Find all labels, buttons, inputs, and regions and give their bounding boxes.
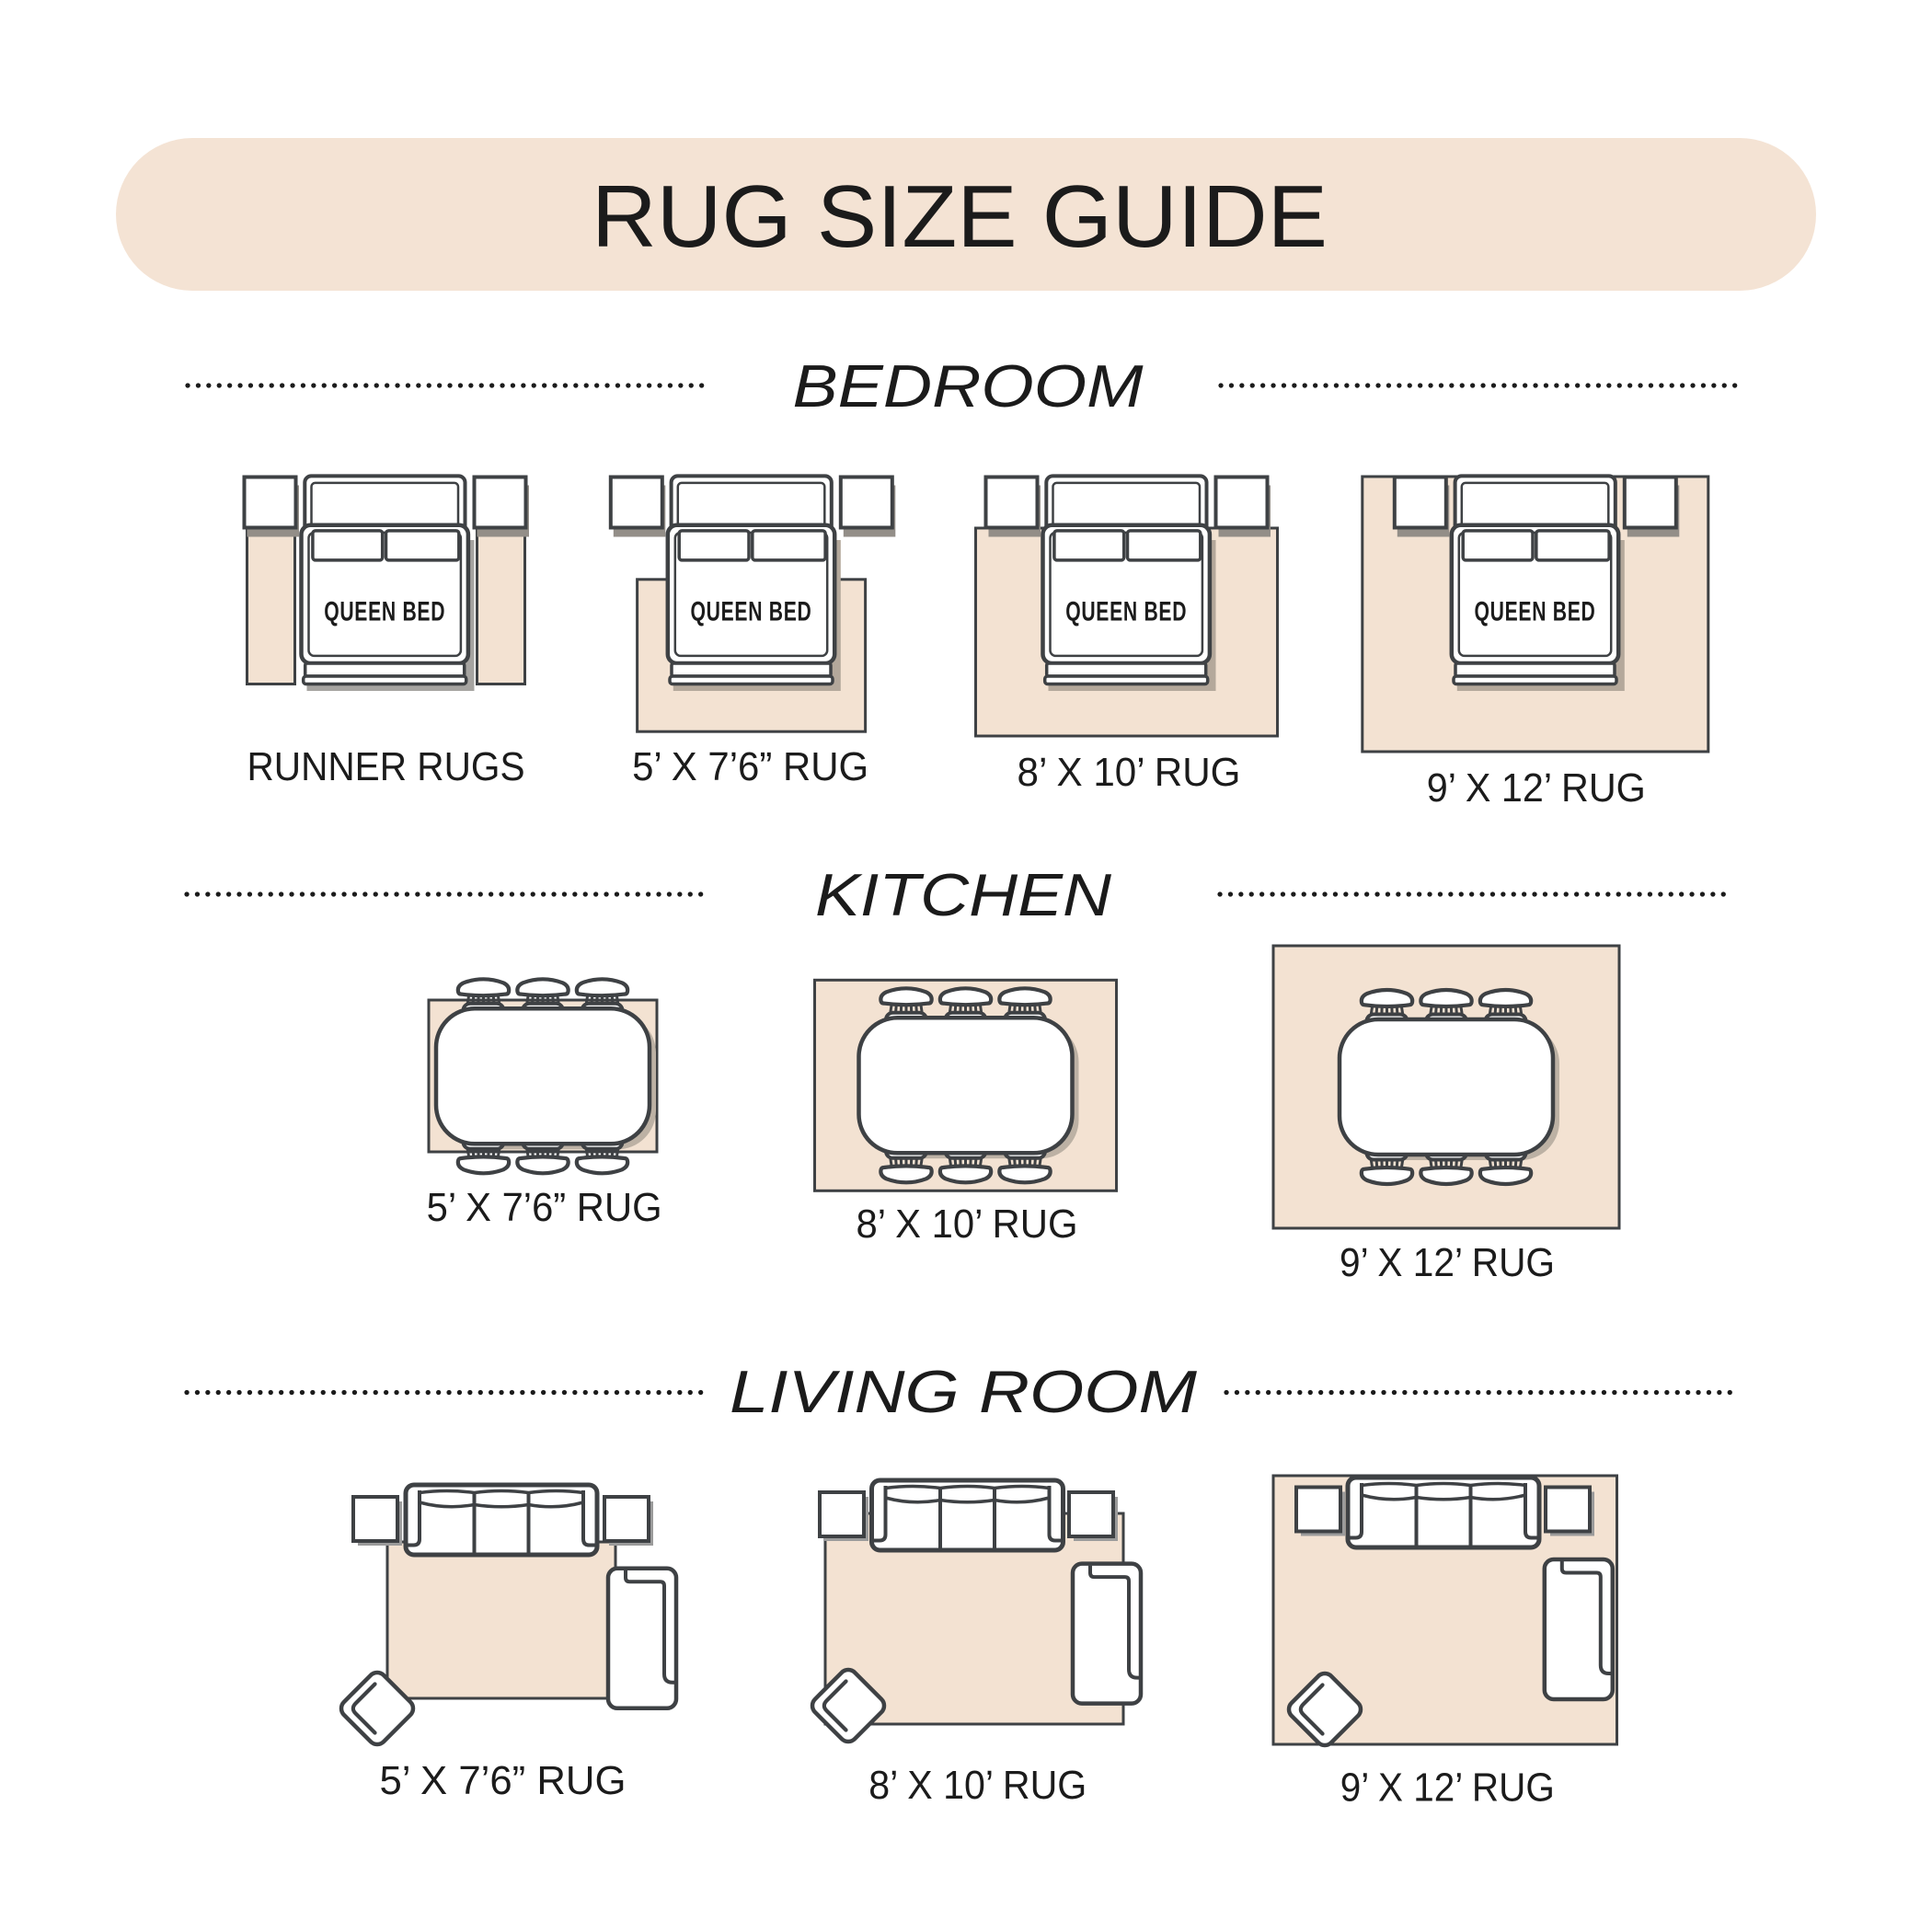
svg-text:KITCHEN: KITCHEN [815,861,1111,928]
svg-text:8’ X 10’ RUG: 8’ X 10’ RUG [857,1202,1078,1247]
svg-text:5’ X 7’6” RUG: 5’ X 7’6” RUG [427,1185,662,1230]
svg-text:9’ X 12’ RUG: 9’ X 12’ RUG [1340,1240,1555,1285]
svg-text:LIVING ROOM: LIVING ROOM [730,1358,1198,1425]
svg-text:RUG SIZE GUIDE: RUG SIZE GUIDE [592,167,1328,266]
svg-text:5’ X 7’6” RUG: 5’ X 7’6” RUG [632,744,868,789]
svg-text:8’ X 10’ RUG: 8’ X 10’ RUG [868,1763,1087,1808]
svg-text:9’ X 12’ RUG: 9’ X 12’ RUG [1427,765,1646,811]
svg-text:8’ X 10’ RUG: 8’ X 10’ RUG [1018,750,1241,795]
svg-text:BEDROOM: BEDROOM [793,352,1144,420]
svg-text:9’ X 12’ RUG: 9’ X 12’ RUG [1340,1765,1555,1811]
svg-text:RUNNER RUGS: RUNNER RUGS [247,744,525,789]
svg-text:5’ X 7’6” RUG: 5’ X 7’6” RUG [380,1758,627,1803]
